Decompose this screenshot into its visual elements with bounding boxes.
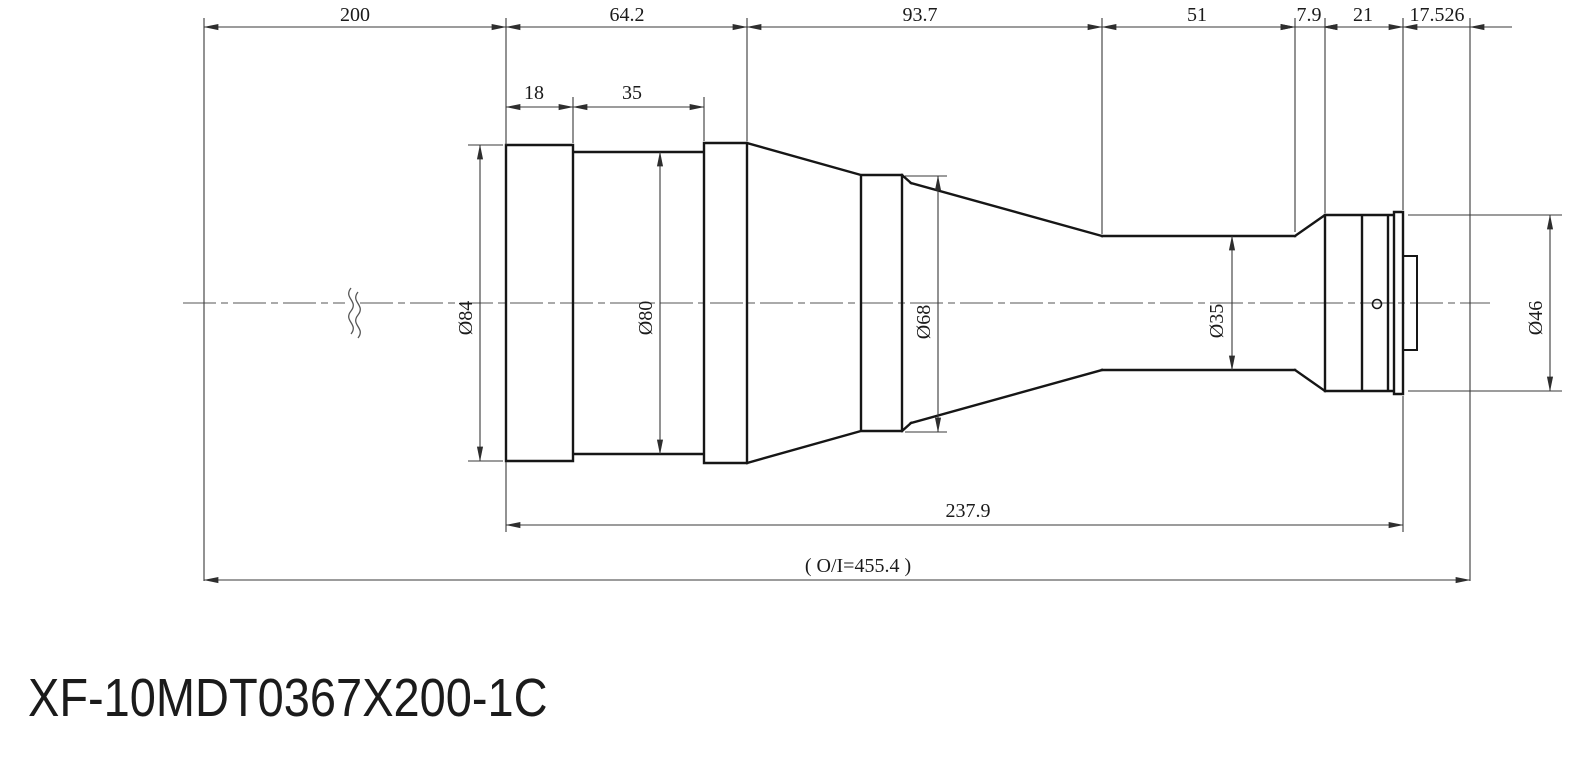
dia-label-35: Ø35 (1206, 304, 1228, 338)
dim-text-93-7: 93.7 (903, 4, 938, 26)
dim-text-21: 21 (1353, 4, 1373, 26)
title-block: XF-10MDT0367X200-1C (28, 667, 548, 728)
dia-label-80: Ø80 (635, 301, 657, 335)
dia-label-84: Ø84 (455, 301, 477, 335)
dim-text-200: 200 (340, 4, 370, 26)
dim-text-35: 35 (622, 82, 642, 104)
dim-text-7-9: 7.9 (1297, 4, 1322, 26)
dim-text-17-526: 17.526 (1410, 4, 1465, 26)
dim-text-64-2: 64.2 (610, 4, 645, 26)
sheet-background (0, 0, 1577, 757)
technical-drawing: 200 64.2 93.7 51 7.9 21 17.526 18 35 Ø84… (0, 0, 1577, 757)
drawing-sheet: 200 64.2 93.7 51 7.9 21 17.526 18 35 Ø84… (0, 0, 1577, 757)
dim-text-oi: ( O/I=455.4 ) (805, 555, 911, 577)
part-number-title: XF-10MDT0367X200-1C (28, 667, 548, 728)
dim-text-237-9: 237.9 (946, 500, 991, 522)
dia-label-46: Ø46 (1525, 301, 1547, 335)
dim-text-18: 18 (524, 82, 544, 104)
dia-label-68: Ø68 (913, 305, 935, 339)
dim-text-51: 51 (1187, 4, 1207, 26)
